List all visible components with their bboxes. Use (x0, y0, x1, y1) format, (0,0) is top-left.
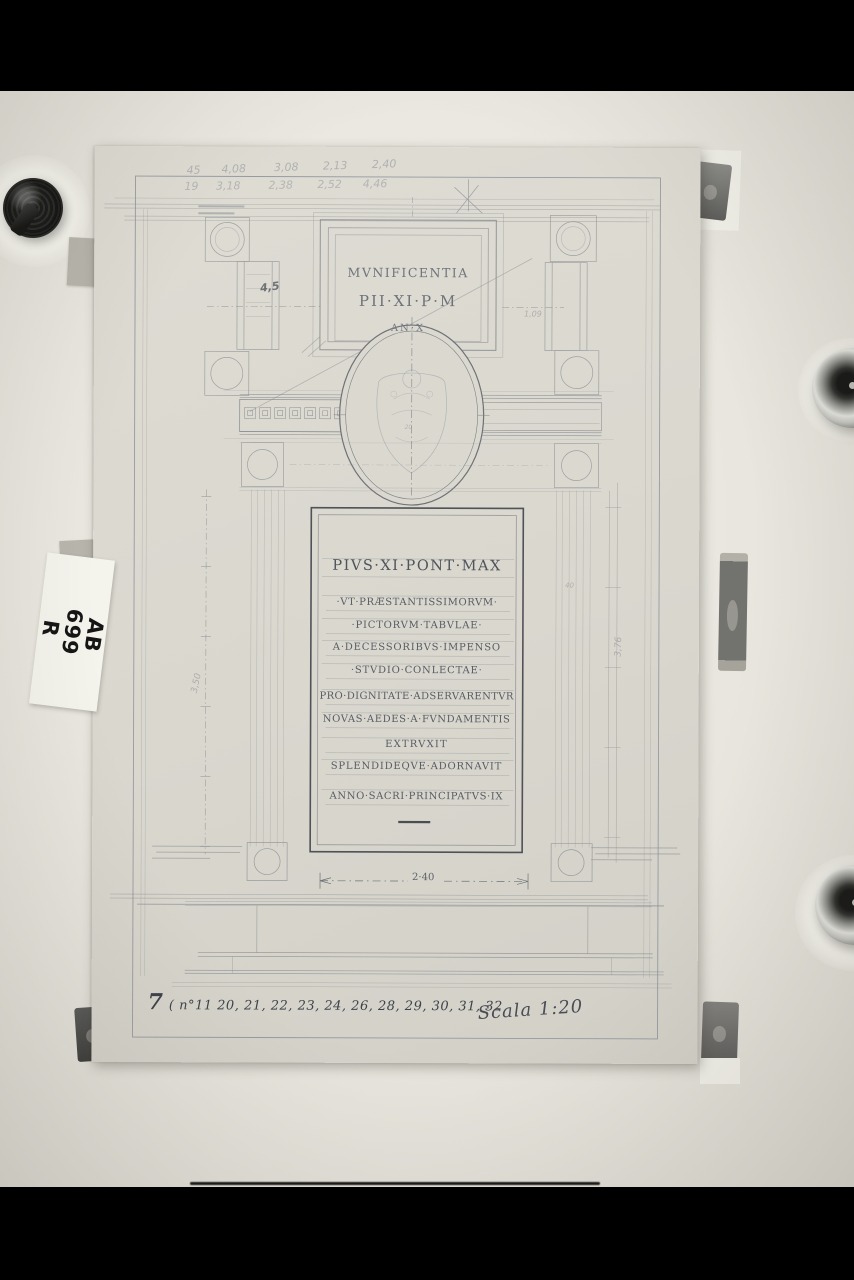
attic-inscription-line3: AN·X (320, 323, 496, 335)
inscription-line-2: ·PICTORVM·TABVLAE· (311, 620, 523, 632)
attic-inscription-line2: PII·XI·P·M (320, 292, 496, 311)
magnet-bottom-right (701, 1001, 739, 1062)
tab-bottom-right (700, 1058, 740, 1084)
lightbox-photo: 45 4,08 3,08 2,13 2,40 19 3,18 2,38 2,52… (0, 91, 854, 1187)
inscription-line-3: A·DECESSORIBVS·IMPENSO (311, 642, 523, 654)
attic-inscription-line1: MVNIFICENTIA (320, 265, 496, 281)
inscription-line-8: SPLENDIDEQVE·ADORNAVIT (310, 761, 522, 773)
oval-cartouche (333, 317, 490, 506)
inscription-line-7: EXTRVXIT (310, 739, 522, 751)
inscription-line-1: ·VT·PRÆSTANTISSIMORVM· (311, 597, 523, 609)
base-moldings (110, 894, 672, 988)
dim-20: 20 (405, 424, 413, 431)
sheet-note-list: ( n°11 20, 21, 22, 23, 24, 26, 28, 29, 3… (169, 998, 503, 1014)
inscription-line-6: NOVAS·AEDES·A·FVNDAMENTIS (311, 714, 523, 726)
drawing-sheet: 45 4,08 3,08 2,13 2,40 19 3,18 2,38 2,52… (91, 146, 700, 1064)
inscription-line-9: ANNO·SACRI·PRINCIPATVS·IX (310, 791, 522, 803)
inscription-line-5: PRO·DIGNITATE·ADSERVARENTVR (311, 691, 523, 703)
dim-109: 1,09 (524, 309, 542, 318)
archival-label-text: AB 699 R (36, 604, 109, 661)
dim-376: 3,76 (613, 637, 624, 657)
dim-240: 2·40 (412, 872, 434, 883)
magnet-strip-right (718, 553, 748, 671)
inscription-title: PIVS·XI·PONT·MAX (311, 558, 523, 575)
dim-40: 40 (565, 582, 574, 590)
sheet-note: 7( n°11 20, 21, 22, 23, 24, 26, 28, 29, … (148, 989, 503, 1016)
dim-45: 4,5 (259, 279, 280, 295)
sheet-note-number: 7 (148, 989, 163, 1015)
inscription-line-4: ·STVDIO·CONLECTAE· (311, 665, 523, 677)
photo-edge-shadow (190, 1182, 600, 1185)
